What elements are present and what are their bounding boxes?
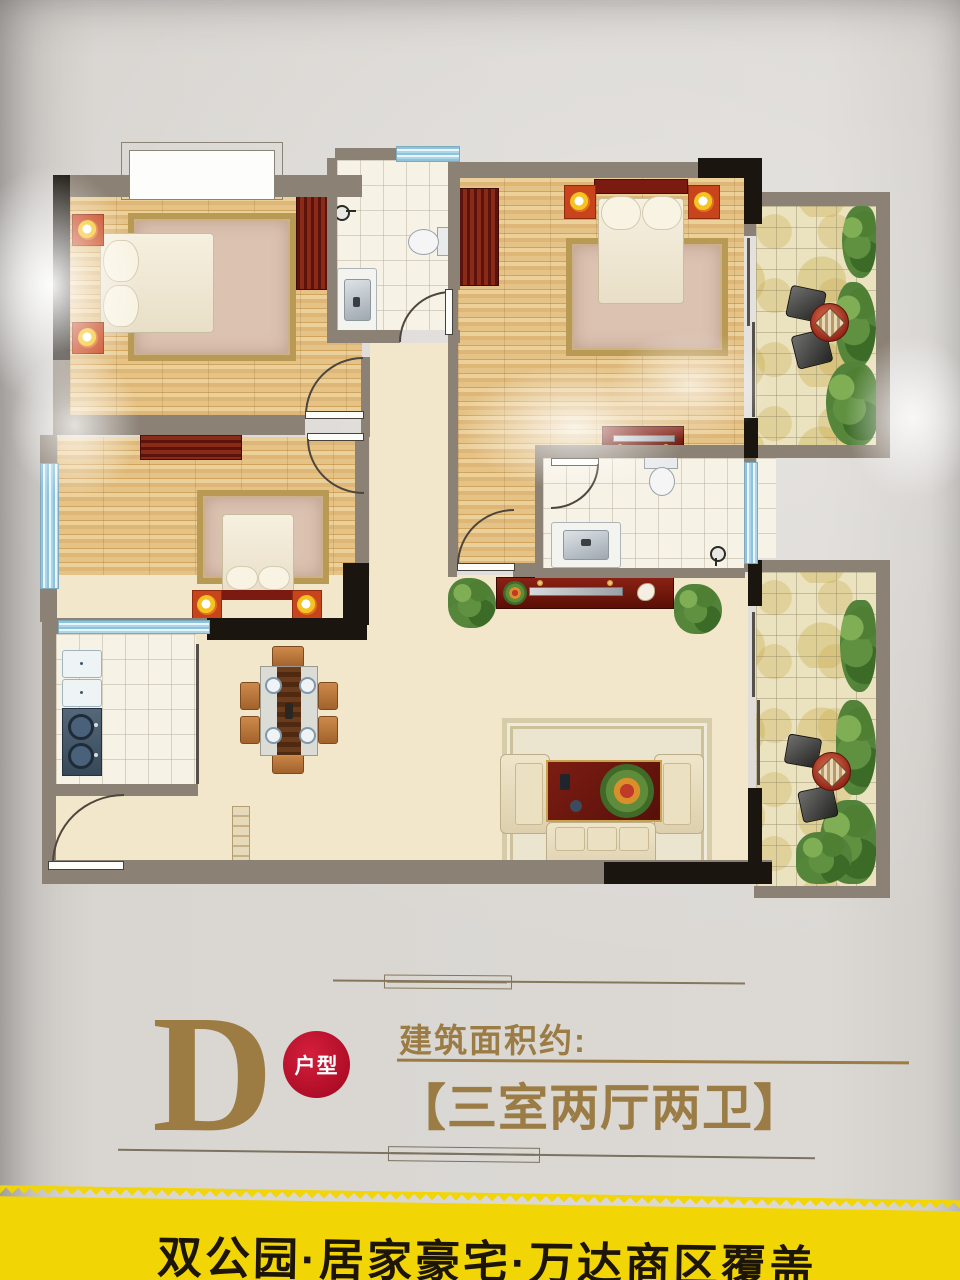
dining-chair-icon (318, 682, 338, 710)
shower-arm (346, 210, 356, 212)
wardrobe-icon (140, 432, 242, 460)
wall (448, 563, 457, 577)
unit-type-letter: D (152, 990, 273, 1158)
window-icon (744, 462, 758, 564)
unit-type-badge: 户型 (283, 1031, 350, 1098)
gas-stove-icon (62, 708, 102, 776)
wall-black (744, 158, 762, 224)
wall (744, 192, 890, 206)
pillow-icon (226, 566, 258, 590)
armchair-icon (500, 754, 550, 834)
sink-vanity-icon (337, 268, 377, 334)
potted-plant-icon (842, 206, 876, 278)
bed-base (220, 590, 294, 600)
banner-slogan: 双公园·居家豪宅·万达商区覆盖 (0, 1218, 960, 1280)
door-leaf (457, 563, 515, 571)
dining-chair-icon (318, 716, 338, 744)
nightstand-lamp-icon (688, 185, 720, 219)
wall (40, 587, 57, 622)
corridor-floor (370, 343, 448, 575)
bay-window-icon (129, 150, 275, 200)
sink-vanity-icon (551, 522, 621, 568)
wall (535, 568, 745, 578)
banner-zigzag-edge (0, 1185, 960, 1213)
wall (327, 330, 400, 343)
wall-black (748, 560, 762, 606)
photo-glare (10, 350, 140, 500)
headboard (594, 179, 688, 194)
toilet-bowl (408, 229, 439, 255)
photo-glare (610, 330, 770, 440)
wall (272, 175, 362, 197)
dining-chair-icon (240, 682, 260, 710)
wall (754, 886, 890, 898)
wardrobe-icon (459, 188, 499, 286)
window-icon (58, 620, 210, 634)
unit-type-badge-label: 户型 (295, 1050, 339, 1080)
flyer-photo: D 户型 建筑面积约: 【三室两厅两卫】 双公园·居家豪宅·万达商区覆盖 (0, 0, 960, 1280)
sliding-door-icon (752, 612, 755, 697)
door-leaf (445, 289, 453, 335)
slogan-banner: 双公园·居家豪宅·万达商区覆盖 (0, 1196, 960, 1280)
service-ledge-floor (756, 458, 776, 558)
potted-plant-icon (674, 584, 722, 634)
area-label: 建筑面积约: (399, 1014, 587, 1062)
wall (448, 162, 700, 178)
door-leaf (48, 861, 124, 870)
dining-table-icon (260, 666, 318, 756)
wall (754, 560, 890, 572)
tv-cabinet-icon (496, 577, 674, 609)
divider-bottom-box (388, 1146, 540, 1163)
balcony-table-icon (812, 752, 851, 791)
coffee-table-icon (546, 760, 662, 822)
nightstand-lamp-icon (564, 185, 596, 219)
wall-black (343, 563, 369, 625)
kitchen-sink-icon (62, 650, 102, 678)
potted-plant-icon (840, 600, 876, 692)
layout-text: 【三室两厅两卫】 (396, 1068, 804, 1140)
wall (448, 178, 458, 567)
dining-chair-icon (240, 716, 260, 744)
divider-top-box (384, 975, 512, 990)
nightstand-lamp-icon (292, 590, 322, 620)
wall (56, 784, 198, 796)
sliding-door-icon (747, 238, 750, 326)
photo-glare (845, 335, 960, 500)
pillow-icon (642, 196, 682, 230)
wardrobe-icon (296, 190, 329, 290)
area-underline (397, 1059, 909, 1065)
wall-black (604, 862, 772, 884)
wall (327, 158, 337, 343)
shower-head-icon (710, 546, 726, 562)
nightstand-lamp-icon (192, 590, 222, 620)
wall-black (748, 788, 762, 862)
window-icon (396, 146, 460, 162)
wall (876, 560, 890, 898)
dining-chair-icon (272, 646, 304, 668)
floorplan (0, 0, 960, 960)
wall-black (207, 618, 367, 640)
kitchen-sink-icon (62, 679, 102, 707)
wall (42, 620, 56, 865)
balcony-table-icon (810, 303, 849, 342)
sliding-door-icon (757, 700, 760, 785)
shower-arm (715, 558, 717, 566)
pillow-icon (258, 566, 290, 590)
pillow-icon (601, 196, 641, 230)
sliding-door-icon (196, 644, 199, 784)
potted-plant-icon (448, 578, 496, 628)
door-leaf (305, 411, 364, 419)
